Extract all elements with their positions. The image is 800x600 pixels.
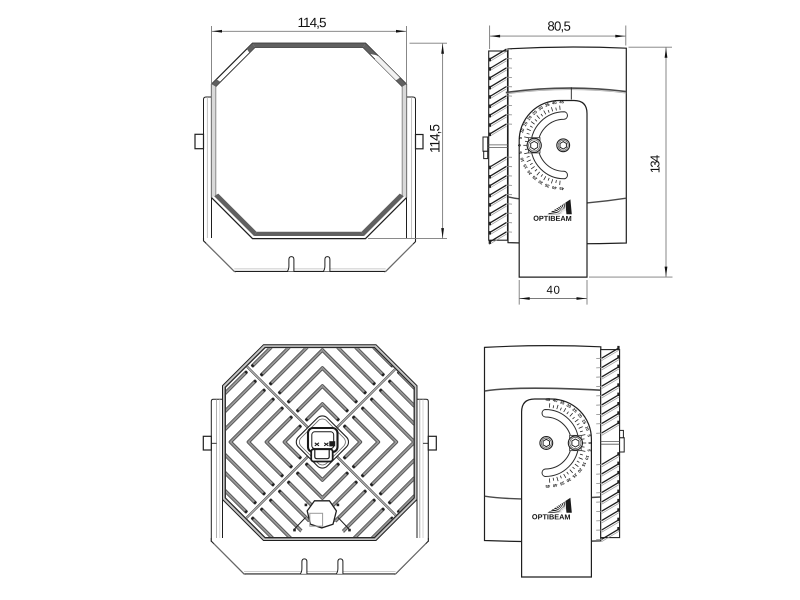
svg-text:80,5: 80,5 xyxy=(547,19,570,34)
svg-text:114,5: 114,5 xyxy=(297,15,326,30)
svg-text:114,5: 114,5 xyxy=(427,124,442,153)
svg-text:40: 40 xyxy=(546,285,560,297)
svg-text:OPTIBEAM: OPTIBEAM xyxy=(533,214,572,223)
svg-text:OPTIBEAM: OPTIBEAM xyxy=(532,512,571,521)
svg-text:134: 134 xyxy=(647,155,662,174)
